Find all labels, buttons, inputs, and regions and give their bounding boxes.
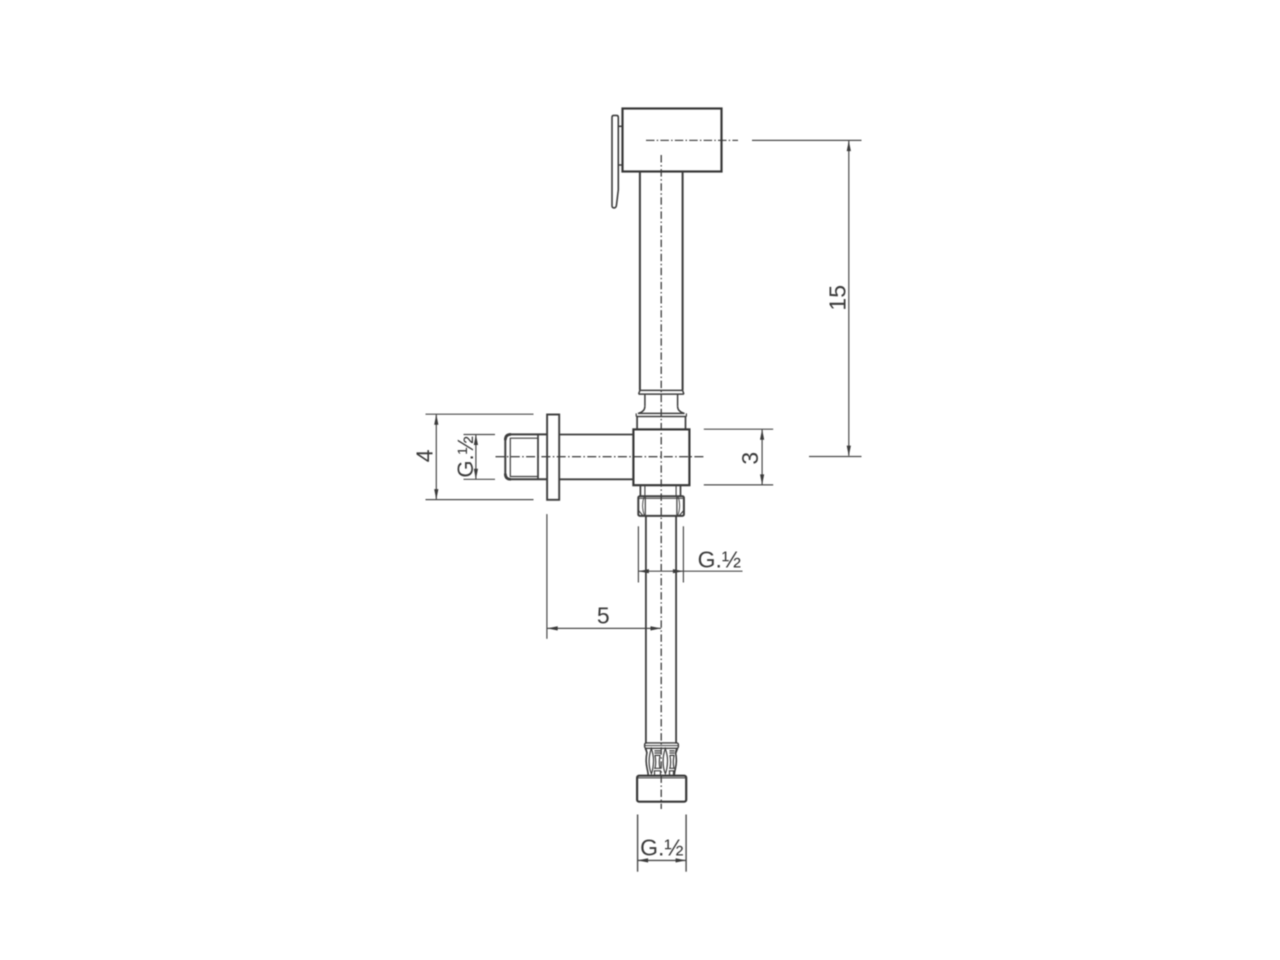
svg-text:15: 15 xyxy=(824,285,850,311)
svg-text:G.½: G.½ xyxy=(640,835,683,861)
svg-text:4: 4 xyxy=(412,449,438,462)
svg-text:5: 5 xyxy=(597,603,610,629)
svg-text:3: 3 xyxy=(737,452,763,465)
svg-text:G.½: G.½ xyxy=(698,546,741,572)
svg-text:G.½: G.½ xyxy=(453,436,478,478)
